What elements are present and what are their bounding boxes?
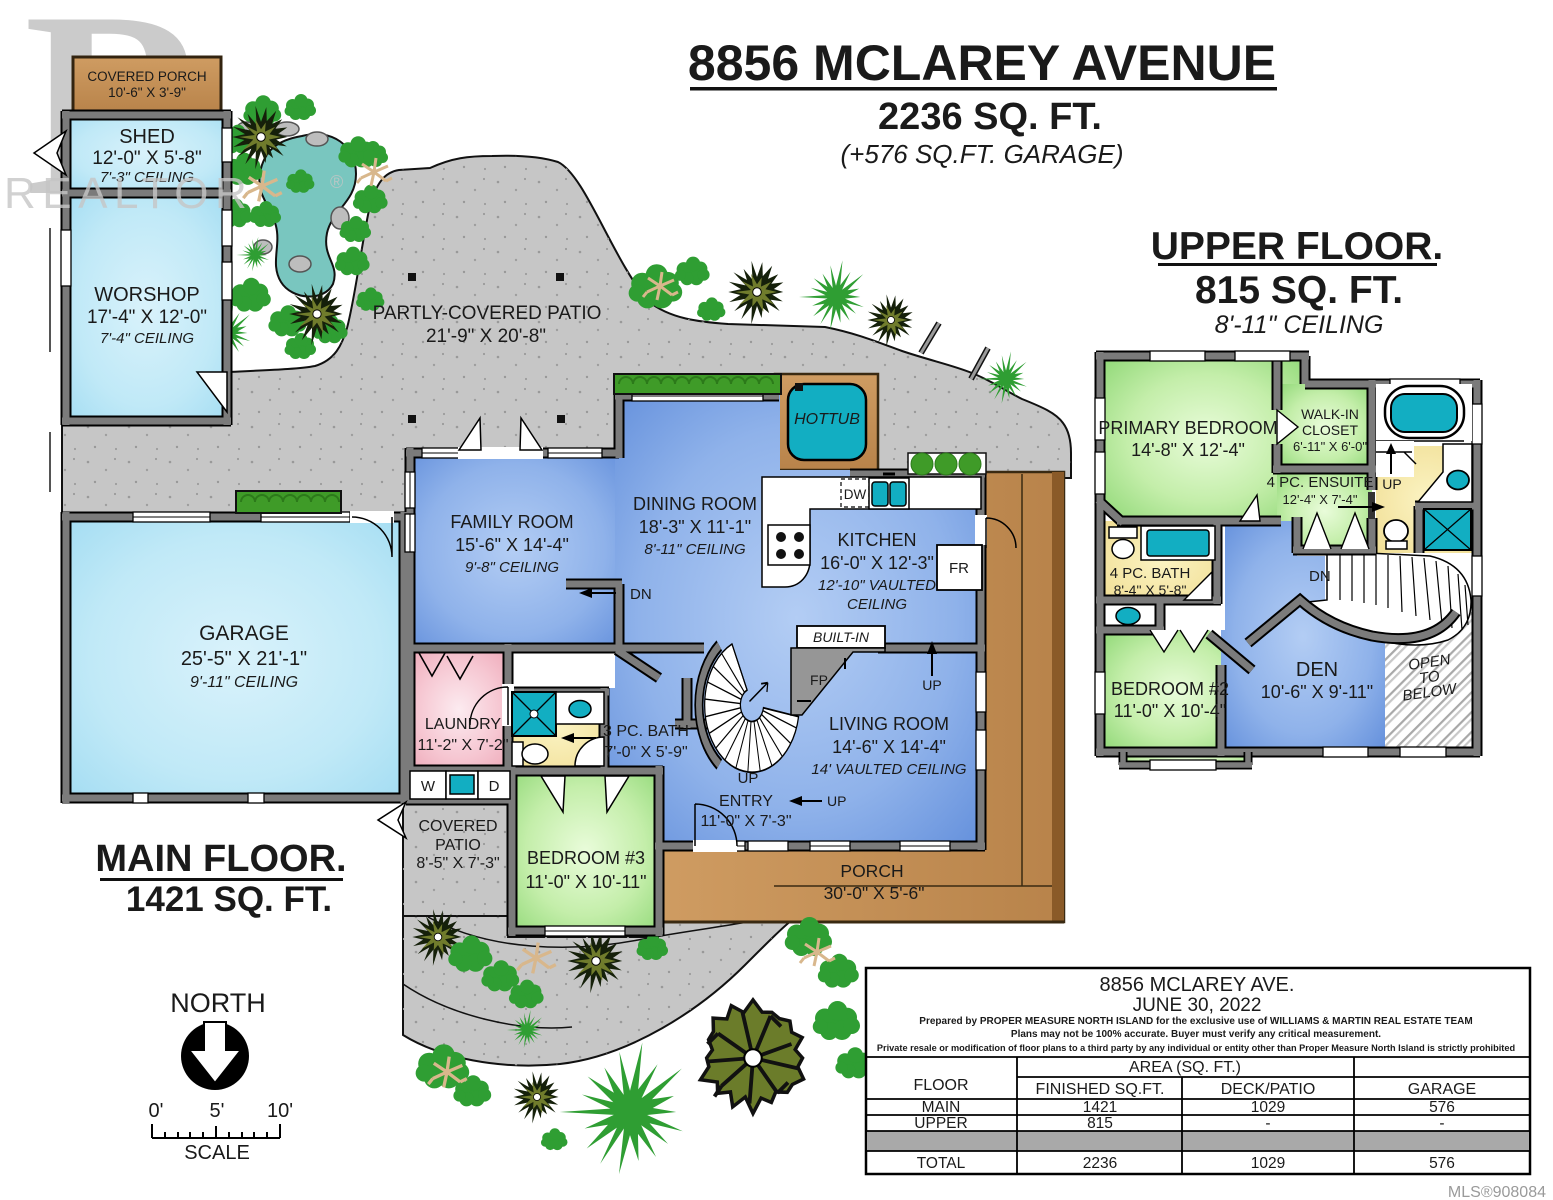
svg-text:PARTLY-COVERED PATIO: PARTLY-COVERED PATIO <box>373 303 602 324</box>
svg-text:Private resale or modificatio: Private resale or modification of floor … <box>877 1043 1515 1053</box>
svg-text:DW: DW <box>844 487 867 502</box>
svg-text:12'-4" X 7'-4": 12'-4" X 7'-4" <box>1283 492 1358 507</box>
svg-text:MAIN: MAIN <box>922 1099 961 1116</box>
svg-text:PORCH: PORCH <box>840 861 903 881</box>
svg-text:10'-6" X 3'-9": 10'-6" X 3'-9" <box>108 85 186 100</box>
svg-text:17'-4" X 12'-0": 17'-4" X 12'-0" <box>87 307 207 328</box>
svg-text:11'-2" X 7'-2": 11'-2" X 7'-2" <box>418 737 509 754</box>
svg-text:AREA (SQ. FT.): AREA (SQ. FT.) <box>1129 1059 1241 1076</box>
svg-text:UP: UP <box>738 770 759 787</box>
svg-text:D: D <box>489 778 500 795</box>
svg-text:14'-6" X 14'-4": 14'-6" X 14'-4" <box>832 737 946 757</box>
svg-text:1029: 1029 <box>1251 1099 1285 1116</box>
svg-text:LIVING ROOM: LIVING ROOM <box>829 714 949 734</box>
svg-text:DN: DN <box>630 586 652 603</box>
svg-text:3 PC. BATH: 3 PC. BATH <box>603 723 689 740</box>
svg-text:NORTH: NORTH <box>170 988 266 1018</box>
svg-text:ENTRY: ENTRY <box>719 793 773 810</box>
svg-text:8'-11" CEILING: 8'-11" CEILING <box>644 541 746 558</box>
svg-text:FR: FR <box>949 560 969 577</box>
svg-text:DINING ROOM: DINING ROOM <box>633 494 757 514</box>
svg-text:8856 MCLAREY AVE.: 8856 MCLAREY AVE. <box>1100 974 1295 996</box>
svg-text:UPPER FLOOR.: UPPER FLOOR. <box>1151 225 1444 268</box>
svg-text:7'-0" X 5'-9": 7'-0" X 5'-9" <box>604 744 687 761</box>
svg-text:WALK-IN: WALK-IN <box>1301 406 1359 422</box>
svg-text:0': 0' <box>149 1100 164 1122</box>
svg-text:21'-9" X 20'-8": 21'-9" X 20'-8" <box>426 326 546 347</box>
svg-text:25'-5" X 21'-1": 25'-5" X 21'-1" <box>181 648 307 670</box>
svg-text:BUILT-IN: BUILT-IN <box>813 629 870 645</box>
svg-text:8'-11" CEILING: 8'-11" CEILING <box>1215 311 1384 339</box>
svg-text:MAIN FLOOR.: MAIN FLOOR. <box>95 838 346 880</box>
svg-text:HOTTUB: HOTTUB <box>794 411 860 428</box>
svg-text:4 PC. BATH: 4 PC. BATH <box>1110 565 1191 582</box>
svg-text:COVERED PORCH: COVERED PORCH <box>87 69 206 84</box>
svg-text:DECK/PATIO: DECK/PATIO <box>1221 1081 1316 1098</box>
svg-text:8856 MCLAREY AVENUE: 8856 MCLAREY AVENUE <box>688 35 1276 91</box>
svg-text:9'-8" CEILING: 9'-8" CEILING <box>465 559 559 576</box>
svg-text:UP: UP <box>1382 476 1401 492</box>
svg-text:CEILING: CEILING <box>847 596 907 613</box>
svg-text:LAUNDRY: LAUNDRY <box>425 716 502 733</box>
svg-text:Prepared by PROPER MEASURE NOR: Prepared by PROPER MEASURE NORTH ISLAND … <box>919 1016 1472 1027</box>
svg-text:JUNE 30, 2022: JUNE 30, 2022 <box>1133 995 1262 1016</box>
svg-text:10': 10' <box>267 1100 293 1122</box>
svg-text:®: ® <box>330 172 343 192</box>
svg-text:10'-6" X 9'-11": 10'-6" X 9'-11" <box>1261 682 1373 702</box>
svg-text:1029: 1029 <box>1251 1155 1285 1172</box>
svg-text:PATIO: PATIO <box>435 837 481 854</box>
svg-text:SHED: SHED <box>119 126 175 148</box>
svg-text:SCALE: SCALE <box>184 1142 250 1164</box>
svg-text:815 SQ. FT.: 815 SQ. FT. <box>1195 269 1403 312</box>
svg-text:-: - <box>1265 1115 1270 1132</box>
svg-text:30'-0" X 5'-6": 30'-0" X 5'-6" <box>824 883 925 903</box>
svg-text:TOTAL: TOTAL <box>917 1155 966 1172</box>
svg-text:BEDROOM #3: BEDROOM #3 <box>527 848 645 868</box>
svg-text:Plans may not be 100% accurate: Plans may not be 100% accurate. Buyer mu… <box>1011 1029 1381 1040</box>
svg-text:(+576 SQ.FT. GARAGE): (+576 SQ.FT. GARAGE) <box>841 139 1124 169</box>
svg-text:14' VAULTED CEILING: 14' VAULTED CEILING <box>811 761 966 778</box>
svg-text:UPPER: UPPER <box>914 1115 967 1132</box>
svg-text:7'-4" CEILING: 7'-4" CEILING <box>100 330 194 347</box>
svg-text:PRIMARY BEDROOM: PRIMARY BEDROOM <box>1098 418 1277 438</box>
svg-text:CLOSET: CLOSET <box>1302 422 1358 438</box>
svg-text:W: W <box>421 778 436 795</box>
svg-text:FINISHED SQ.FT.: FINISHED SQ.FT. <box>1036 1081 1165 1098</box>
svg-text:9'-11" CEILING: 9'-11" CEILING <box>190 674 298 691</box>
svg-text:1421 SQ. FT.: 1421 SQ. FT. <box>126 880 332 919</box>
svg-text:576: 576 <box>1429 1099 1455 1116</box>
svg-text:12'-0" X 5'-8": 12'-0" X 5'-8" <box>92 148 201 169</box>
svg-text:FLOOR: FLOOR <box>913 1077 968 1094</box>
svg-text:8'-4" X 5'-8": 8'-4" X 5'-8" <box>1114 582 1187 598</box>
svg-text:FAMILY ROOM: FAMILY ROOM <box>450 512 573 532</box>
svg-text:KITCHEN: KITCHEN <box>837 530 916 550</box>
svg-text:12'-10" VAULTED: 12'-10" VAULTED <box>818 577 936 594</box>
svg-text:815: 815 <box>1087 1115 1113 1132</box>
svg-text:DEN: DEN <box>1296 659 1338 681</box>
svg-text:18'-3" X 11'-1": 18'-3" X 11'-1" <box>639 517 751 537</box>
svg-text:8'-5" X 7'-3": 8'-5" X 7'-3" <box>416 855 499 872</box>
svg-text:WORSHOP: WORSHOP <box>94 284 200 306</box>
svg-text:DN: DN <box>1309 568 1331 585</box>
svg-text:15'-6" X 14'-4": 15'-6" X 14'-4" <box>455 535 569 555</box>
svg-text:BEDROOM #2: BEDROOM #2 <box>1111 679 1229 699</box>
svg-text:GARAGE: GARAGE <box>1408 1081 1476 1098</box>
svg-text:REALTOR: REALTOR <box>4 169 253 218</box>
svg-text:4 PC. ENSUITE: 4 PC. ENSUITE <box>1267 474 1374 491</box>
svg-text:MLS®908084: MLS®908084 <box>1448 1184 1546 1200</box>
svg-text:11'-0" X 10'-11": 11'-0" X 10'-11" <box>525 872 646 892</box>
svg-text:2236: 2236 <box>1083 1155 1117 1172</box>
svg-text:6'-11" X 6'-0": 6'-11" X 6'-0" <box>1293 439 1367 454</box>
svg-text:1421: 1421 <box>1083 1099 1117 1116</box>
svg-text:11'-0" X 7'-3": 11'-0" X 7'-3" <box>701 813 792 830</box>
svg-text:5': 5' <box>210 1100 225 1122</box>
svg-text:576: 576 <box>1429 1155 1455 1172</box>
svg-text:16'-0" X 12'-3": 16'-0" X 12'-3" <box>820 553 934 573</box>
svg-text:UP: UP <box>827 793 846 809</box>
svg-text:COVERED: COVERED <box>418 818 497 835</box>
svg-text:GARAGE: GARAGE <box>199 622 289 645</box>
svg-text:11'-0" X 10'-4": 11'-0" X 10'-4" <box>1114 701 1226 721</box>
svg-text:UP: UP <box>922 677 941 693</box>
svg-text:FP: FP <box>810 672 828 688</box>
svg-text:14'-8" X 12'-4": 14'-8" X 12'-4" <box>1131 440 1245 460</box>
svg-text:2236 SQ. FT.: 2236 SQ. FT. <box>878 96 1102 138</box>
svg-text:-: - <box>1439 1115 1444 1132</box>
